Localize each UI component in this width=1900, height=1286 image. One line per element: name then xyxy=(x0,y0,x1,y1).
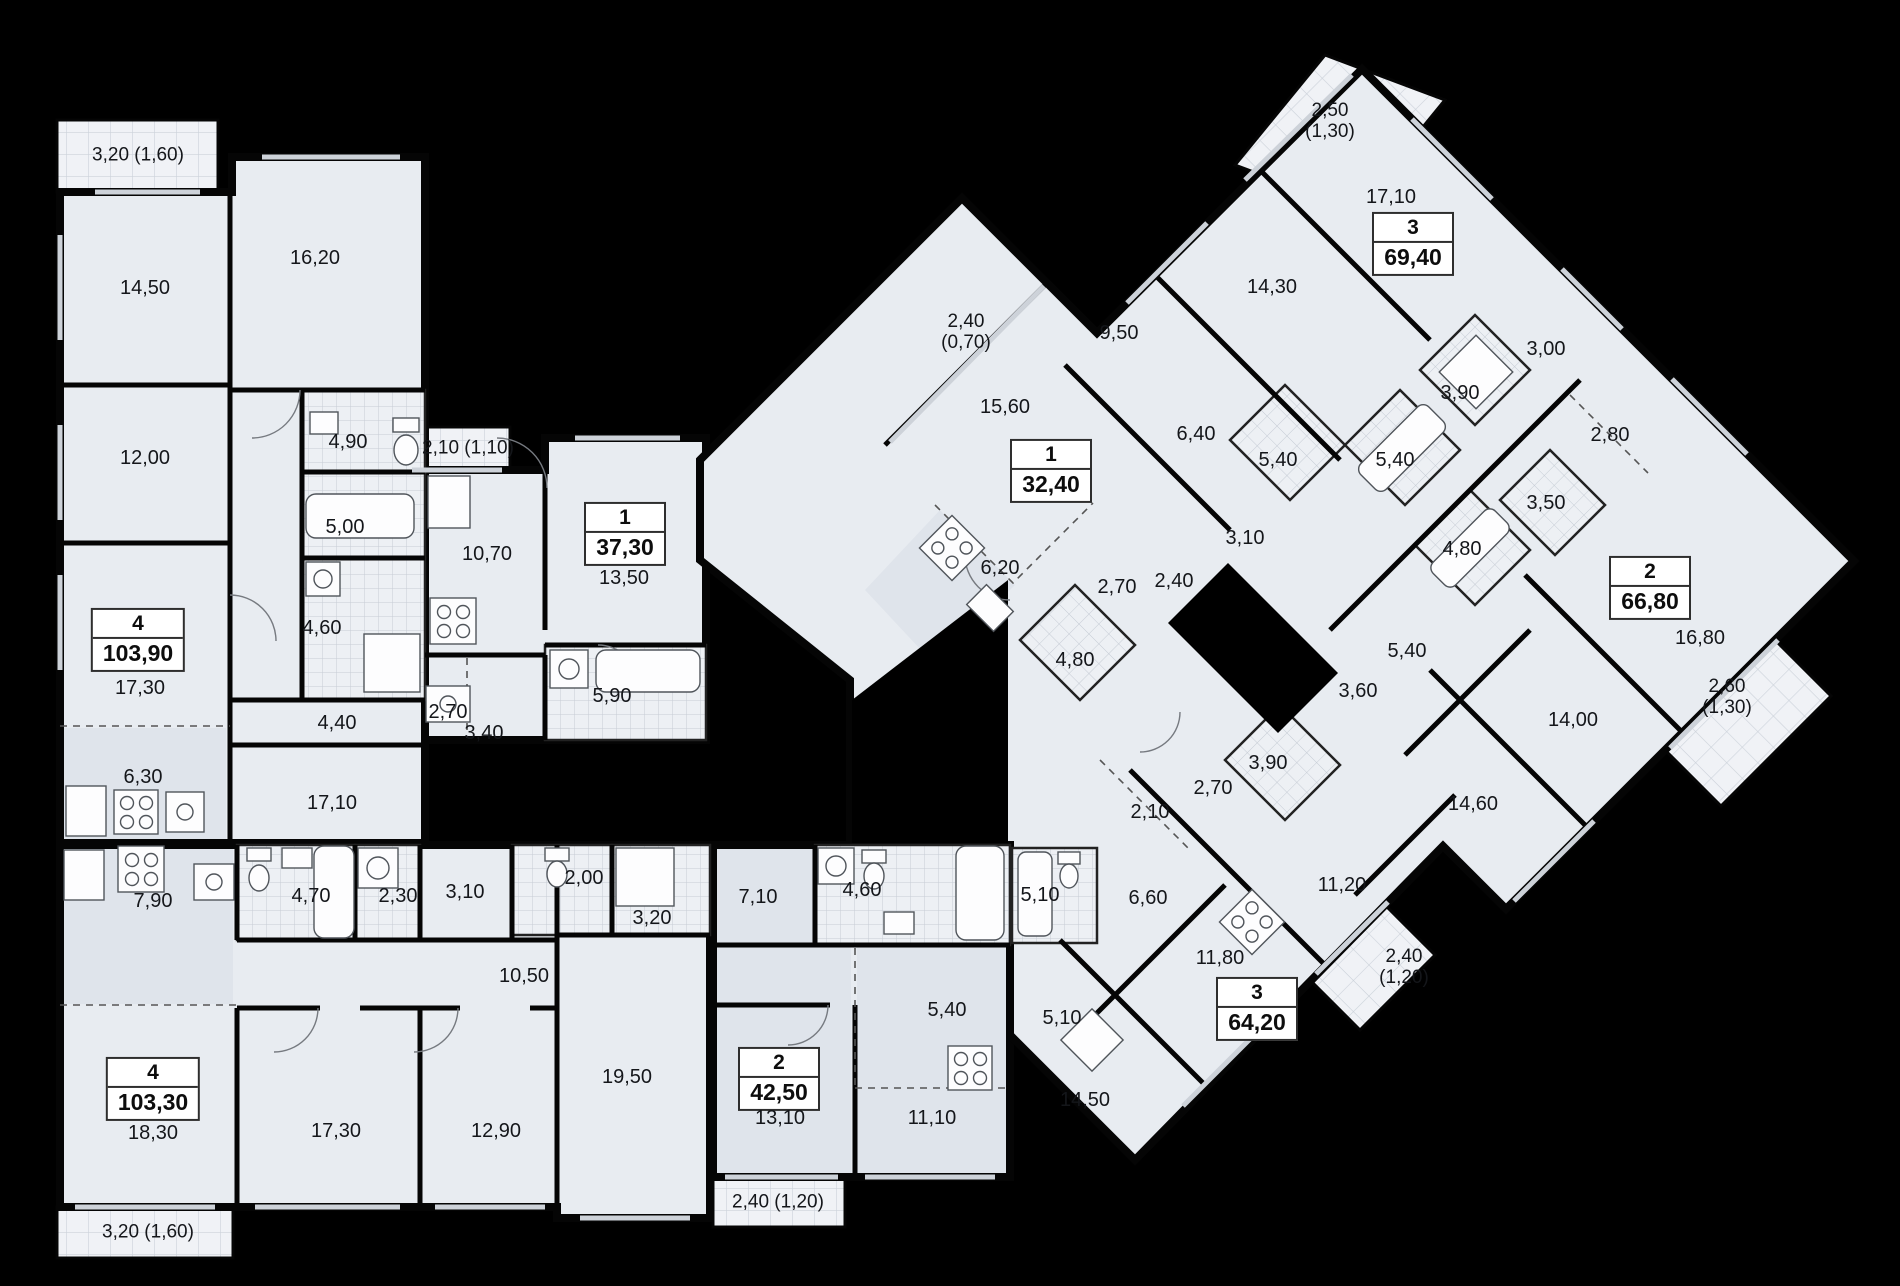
room-area-label: 4,90 xyxy=(329,431,368,453)
room-area-label: 11,10 xyxy=(908,1107,957,1129)
room-area-label: 5,40 xyxy=(1259,449,1298,471)
room-area-label: 11,80 xyxy=(1196,947,1245,969)
apartment-rooms-count: 2 xyxy=(740,1049,818,1076)
balcony-area-label: 2,40(0,70) xyxy=(941,312,991,354)
room-area-label: 19,50 xyxy=(602,1066,652,1088)
room-area-label: 10,70 xyxy=(462,543,512,565)
apartment-total-area: 32,40 xyxy=(1012,468,1090,501)
room-area-label: 17,30 xyxy=(311,1120,361,1142)
room-area-label: 6,30 xyxy=(124,766,163,788)
room-area-label: 14,50 xyxy=(120,277,170,299)
room-area-label: 2,30 xyxy=(379,885,418,907)
room-area-label: 16,80 xyxy=(1675,627,1725,649)
room-area-label: 9,50 xyxy=(1100,322,1139,344)
room-area-label: 12,90 xyxy=(471,1120,521,1142)
room-area-label: 2,10 xyxy=(1131,801,1170,823)
balcony-area-label: 3,20 (1,60) xyxy=(102,1223,194,1244)
room-area-label: 3,90 xyxy=(1249,752,1288,774)
room-area-label: 17,10 xyxy=(1366,186,1416,208)
room-area-label: 18,30 xyxy=(128,1122,178,1144)
apartment-rooms-count: 4 xyxy=(93,610,183,637)
apartment-total-area: 66,80 xyxy=(1611,585,1689,618)
balcony-area-line: 3,20 (1,60) xyxy=(102,1223,194,1244)
balcony-area-line: (0,70) xyxy=(941,333,991,354)
balcony-area-line: 2,40 xyxy=(941,312,991,333)
balcony-area-line: 2,60 xyxy=(1702,677,1752,698)
apartment-badge-apt-2-66-80[interactable]: 266,80 xyxy=(1609,556,1691,620)
balcony-area-label: 2,60(1,30) xyxy=(1702,677,1752,719)
room-area-label: 4,60 xyxy=(843,879,882,901)
room-area-label: 3,20 xyxy=(633,907,672,929)
room-area-label: 3,00 xyxy=(1527,338,1566,360)
room-area-label: 4,60 xyxy=(303,617,342,639)
balcony-area-label: 2,40 (1,20) xyxy=(732,1193,824,1214)
room-area-label: 3,10 xyxy=(446,881,485,903)
apartment-rooms-count: 2 xyxy=(1611,558,1689,585)
room-area-label: 5,40 xyxy=(1388,640,1427,662)
labels-layer: 4103,9014,5016,2012,004,905,004,6017,304… xyxy=(0,0,1900,1286)
apartment-rooms-count: 1 xyxy=(586,504,664,531)
apartment-badge-apt-1-32-40[interactable]: 132,40 xyxy=(1010,439,1092,503)
floor-plan-canvas: 4103,9014,5016,2012,004,905,004,6017,304… xyxy=(0,0,1900,1286)
room-area-label: 4,80 xyxy=(1443,538,1482,560)
apartment-total-area: 103,30 xyxy=(108,1086,198,1119)
balcony-area-line: 2,10 (1,10) xyxy=(422,439,514,460)
apartment-total-area: 69,40 xyxy=(1374,241,1452,274)
room-area-label: 14,30 xyxy=(1247,276,1297,298)
room-area-label: 5,10 xyxy=(1043,1007,1082,1029)
room-area-label: 14,60 xyxy=(1448,793,1498,815)
room-area-label: 12,00 xyxy=(120,447,170,469)
apartment-total-area: 103,90 xyxy=(93,637,183,670)
room-area-label: 5,40 xyxy=(1376,449,1415,471)
apartment-badge-apt-3-69-40[interactable]: 369,40 xyxy=(1372,212,1454,276)
room-area-label: 15,60 xyxy=(980,396,1030,418)
room-area-label: 6,60 xyxy=(1129,887,1168,909)
room-area-label: 16,20 xyxy=(290,247,340,269)
apartment-rooms-count: 4 xyxy=(108,1059,198,1086)
room-area-label: 2,70 xyxy=(1098,576,1137,598)
room-area-label: 4,70 xyxy=(292,885,331,907)
balcony-area-label: 2,50(1,30) xyxy=(1305,101,1355,143)
apartment-badge-apt-3-64-20[interactable]: 364,20 xyxy=(1216,977,1298,1041)
balcony-area-line: (1,20) xyxy=(1379,968,1429,989)
room-area-label: 13,50 xyxy=(599,567,649,589)
room-area-label: 3,60 xyxy=(1339,680,1378,702)
room-area-label: 13,10 xyxy=(755,1107,805,1129)
balcony-area-line: 2,40 xyxy=(1379,947,1429,968)
room-area-label: 7,10 xyxy=(739,886,778,908)
apartment-total-area: 42,50 xyxy=(740,1076,818,1109)
room-area-label: 6,40 xyxy=(1177,423,1216,445)
balcony-area-line: 2,40 (1,20) xyxy=(732,1193,824,1214)
room-area-label: 5,00 xyxy=(326,516,365,538)
apartment-rooms-count: 3 xyxy=(1374,214,1452,241)
room-area-label: 7,90 xyxy=(134,890,173,912)
balcony-area-label: 3,20 (1,60) xyxy=(92,146,184,167)
room-area-label: 2,70 xyxy=(1194,777,1233,799)
room-area-label: 17,30 xyxy=(115,677,165,699)
balcony-area-label: 2,10 (1,10) xyxy=(422,439,514,460)
room-area-label: 5,90 xyxy=(593,685,632,707)
apartment-badge-apt-4-103-90[interactable]: 4103,90 xyxy=(91,608,185,672)
balcony-area-line: (1,30) xyxy=(1305,122,1355,143)
balcony-area-line: (1,30) xyxy=(1702,698,1752,719)
room-area-label: 14,00 xyxy=(1548,709,1598,731)
room-area-label: 17,10 xyxy=(307,792,357,814)
apartment-badge-apt-2-42-50[interactable]: 242,50 xyxy=(738,1047,820,1111)
room-area-label: 2,00 xyxy=(565,867,604,889)
room-area-label: 3,40 xyxy=(465,722,504,744)
balcony-area-line: 3,20 (1,60) xyxy=(92,146,184,167)
room-area-label: 2,40 xyxy=(1155,570,1194,592)
room-area-label: 11,20 xyxy=(1318,874,1367,896)
apartment-rooms-count: 1 xyxy=(1012,441,1090,468)
room-area-label: 2,70 xyxy=(429,701,468,723)
room-area-label: 10,50 xyxy=(499,965,549,987)
apartment-rooms-count: 3 xyxy=(1218,979,1296,1006)
apartment-total-area: 37,30 xyxy=(586,531,664,564)
balcony-area-line: 2,50 xyxy=(1305,101,1355,122)
room-area-label: 3,10 xyxy=(1226,527,1265,549)
room-area-label: 4,80 xyxy=(1056,649,1095,671)
room-area-label: 14,50 xyxy=(1060,1089,1110,1111)
apartment-badge-apt-1-37-30[interactable]: 137,30 xyxy=(584,502,666,566)
apartment-total-area: 64,20 xyxy=(1218,1006,1296,1039)
apartment-badge-apt-4-103-30[interactable]: 4103,30 xyxy=(106,1057,200,1121)
room-area-label: 2,80 xyxy=(1591,424,1630,446)
room-area-label: 5,40 xyxy=(928,999,967,1021)
room-area-label: 6,20 xyxy=(981,557,1020,579)
room-area-label: 3,90 xyxy=(1441,382,1480,404)
room-area-label: 3,50 xyxy=(1527,492,1566,514)
room-area-label: 4,40 xyxy=(318,712,357,734)
balcony-area-label: 2,40(1,20) xyxy=(1379,947,1429,989)
room-area-label: 5,10 xyxy=(1021,884,1060,906)
